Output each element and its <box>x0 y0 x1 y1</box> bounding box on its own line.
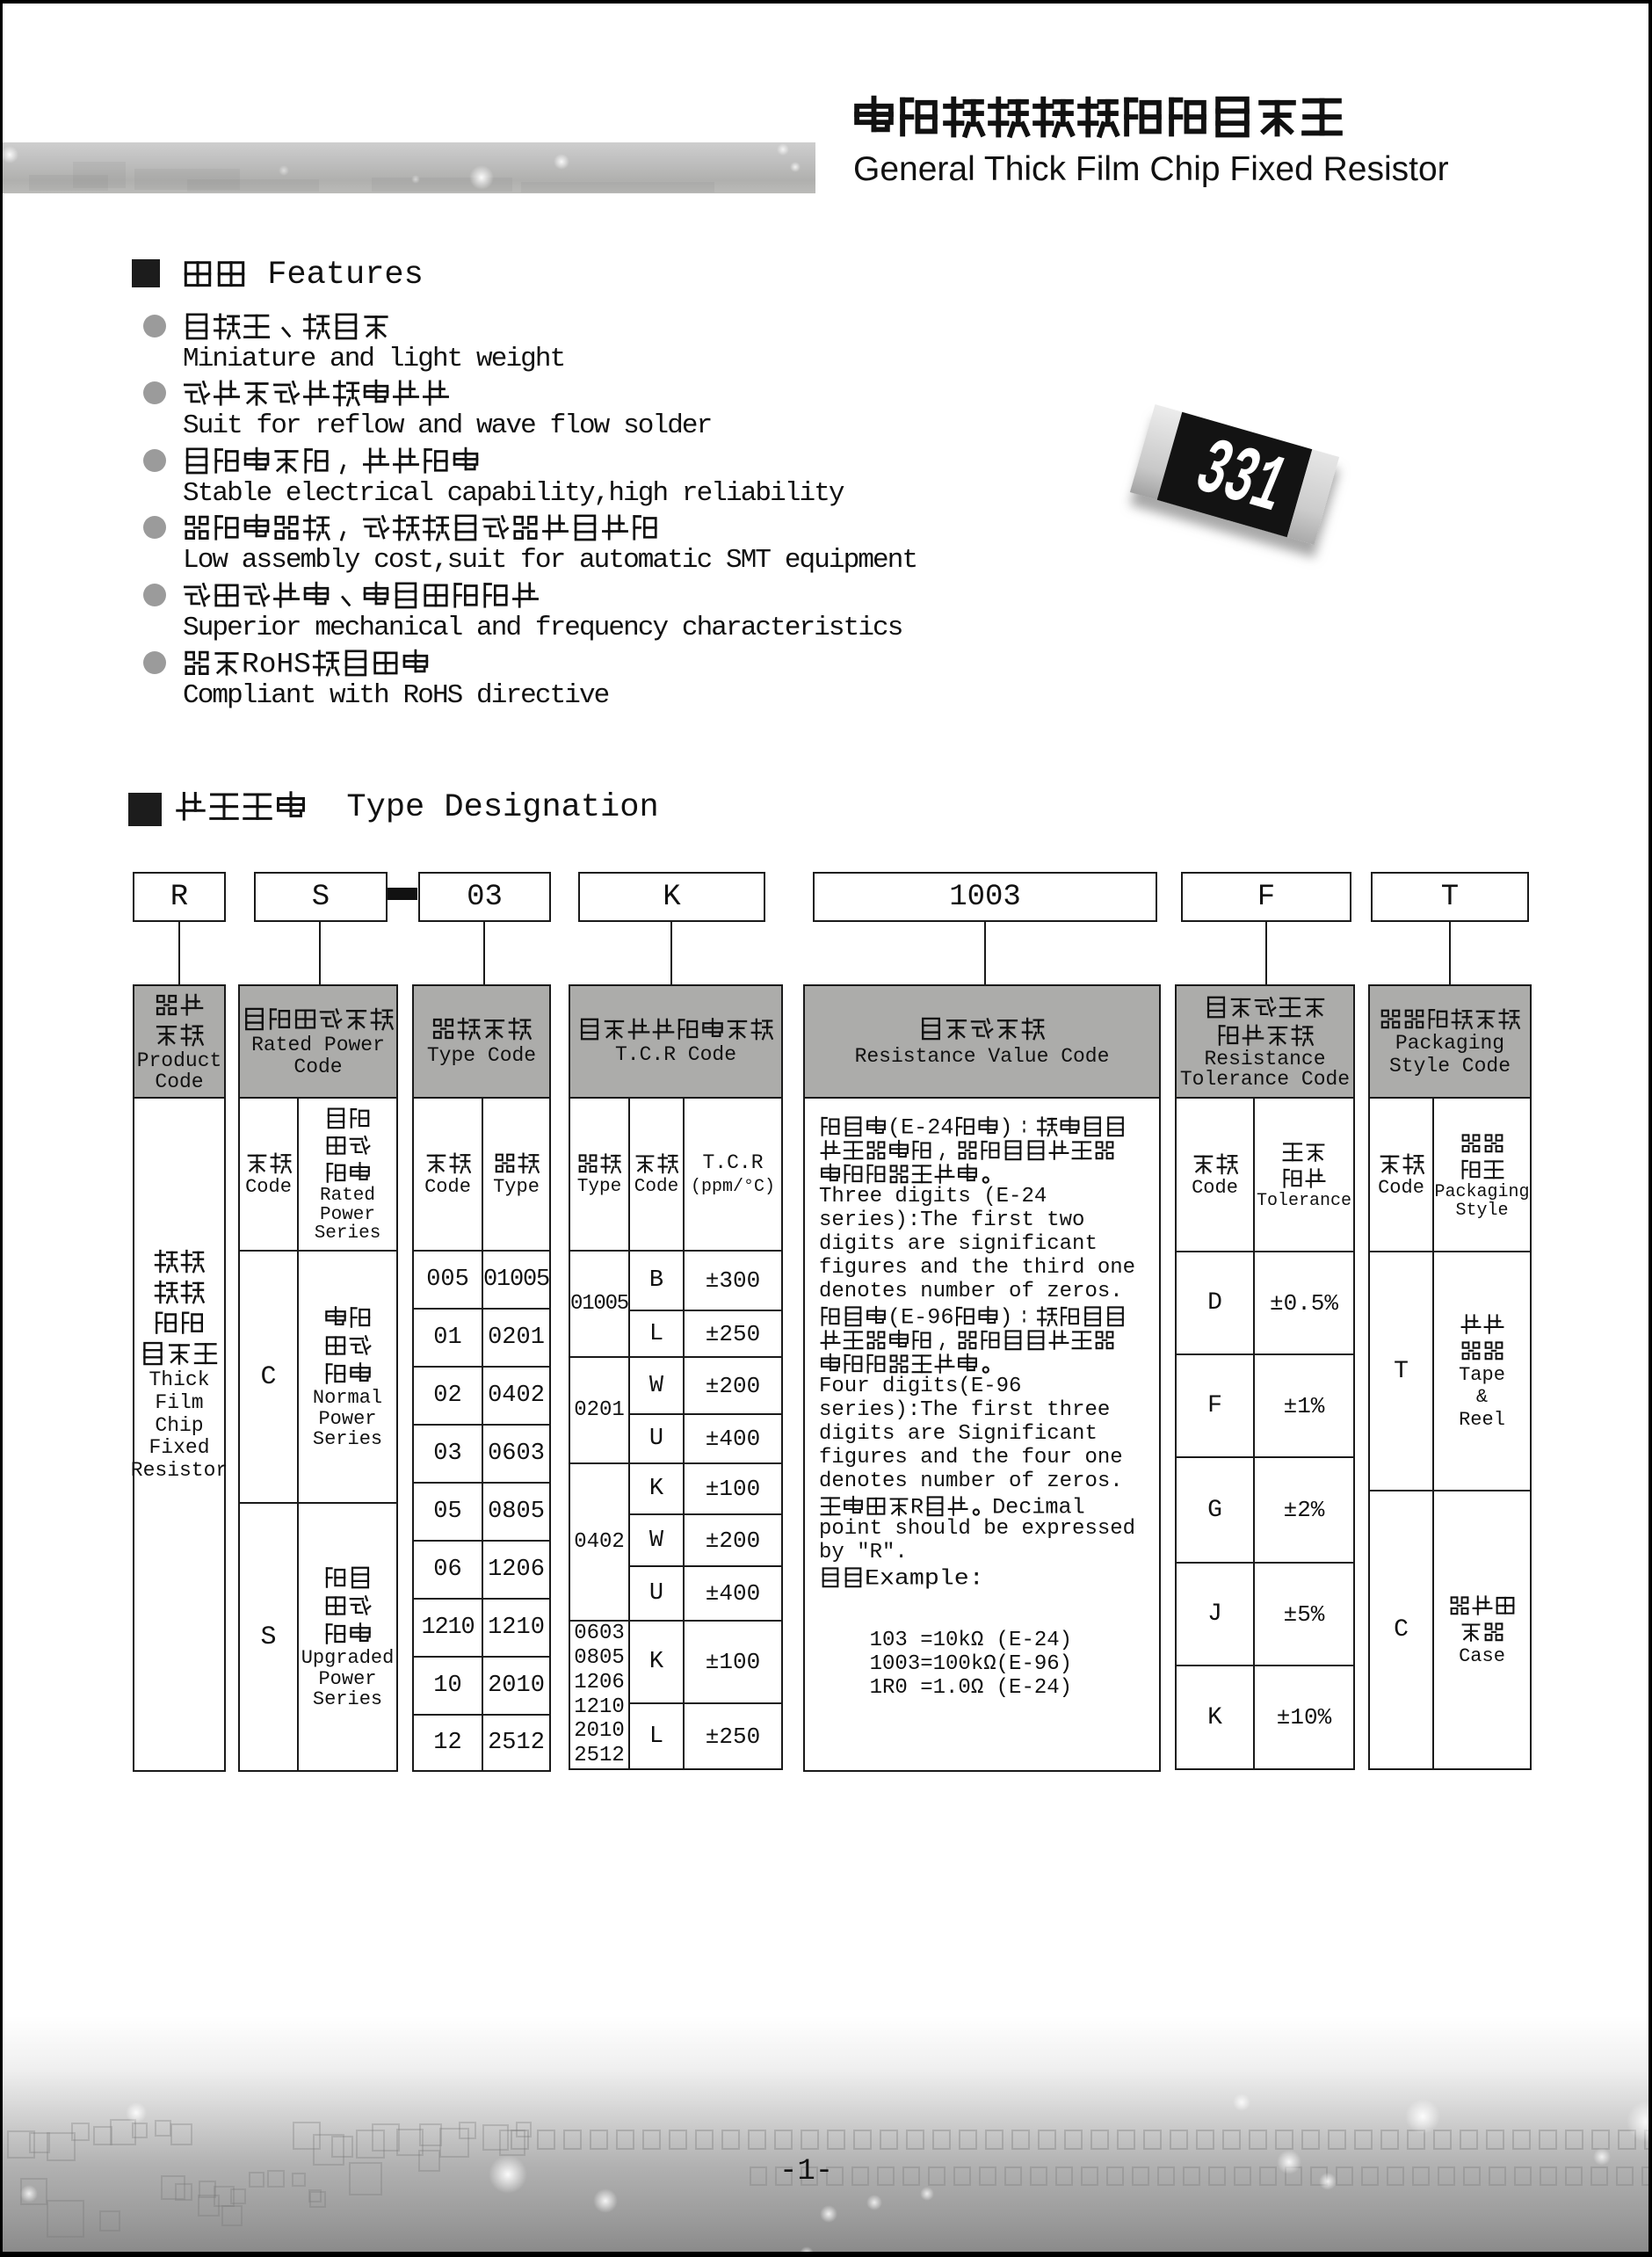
svg-text:RoHS: RoHS <box>242 649 311 680</box>
svg-text:(E-96: (E-96 <box>888 1306 953 1330</box>
svg-text:R: R <box>910 1496 924 1520</box>
svg-text:): ) <box>999 1116 1012 1140</box>
svg-text:): ) <box>999 1306 1012 1330</box>
svg-text:Decimal: Decimal <box>992 1496 1085 1520</box>
svg-text:Example:: Example: <box>865 1567 984 1591</box>
svg-text:(E-24: (E-24 <box>888 1116 953 1140</box>
